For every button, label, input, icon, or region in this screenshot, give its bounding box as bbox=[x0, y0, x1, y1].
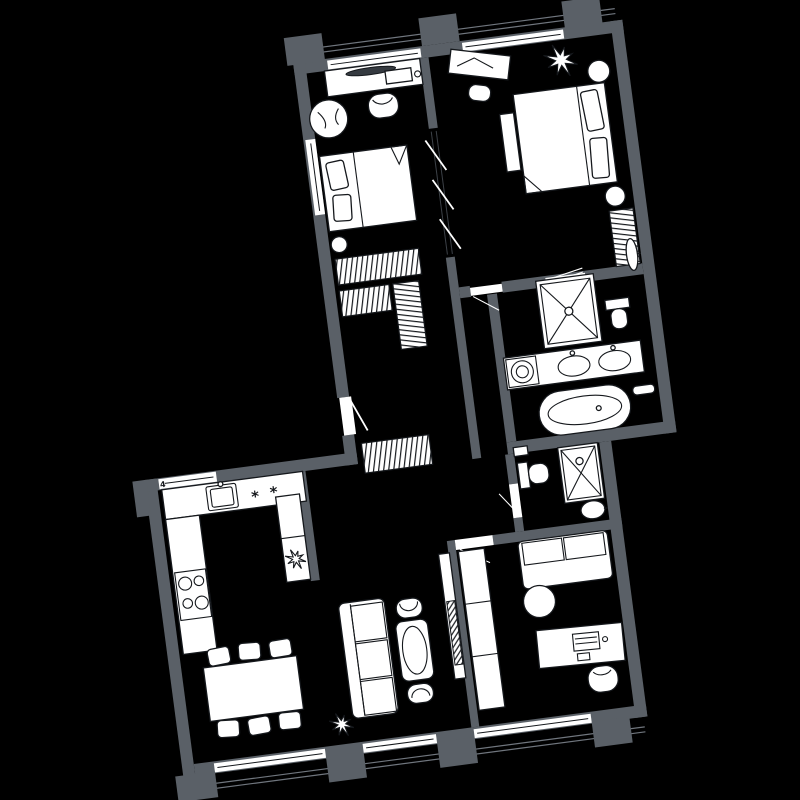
chair bbox=[217, 720, 240, 738]
pillar bbox=[418, 13, 459, 46]
drain bbox=[564, 307, 573, 316]
wall-bedroom2-bottom-a bbox=[459, 286, 471, 298]
shower-cabin bbox=[558, 443, 605, 504]
chair bbox=[247, 715, 272, 736]
pillar bbox=[437, 737, 478, 768]
shower-cabin bbox=[536, 274, 602, 349]
background bbox=[0, 0, 800, 800]
double-bed bbox=[513, 83, 617, 194]
faucet bbox=[611, 345, 616, 350]
desk-chair bbox=[468, 84, 492, 102]
chair bbox=[278, 711, 302, 730]
faucet bbox=[218, 481, 223, 486]
pillar bbox=[592, 717, 633, 748]
dining-set bbox=[201, 636, 306, 741]
boiler-shelf bbox=[513, 446, 528, 457]
shower-head bbox=[575, 457, 583, 465]
chair bbox=[206, 646, 231, 667]
drawer-box bbox=[385, 68, 412, 84]
wall-wc-left-b bbox=[513, 517, 524, 532]
pillow bbox=[590, 137, 610, 178]
pillar bbox=[561, 0, 602, 29]
faucet bbox=[570, 351, 575, 356]
chair bbox=[238, 642, 261, 661]
bed bbox=[320, 145, 417, 232]
pillar bbox=[326, 752, 367, 783]
floor-plan: 4 bbox=[0, 0, 800, 800]
chair bbox=[268, 638, 293, 658]
pillar bbox=[284, 33, 325, 66]
oval-table bbox=[395, 618, 435, 682]
drain bbox=[596, 405, 601, 410]
desk bbox=[536, 622, 625, 668]
pillow bbox=[333, 194, 353, 221]
